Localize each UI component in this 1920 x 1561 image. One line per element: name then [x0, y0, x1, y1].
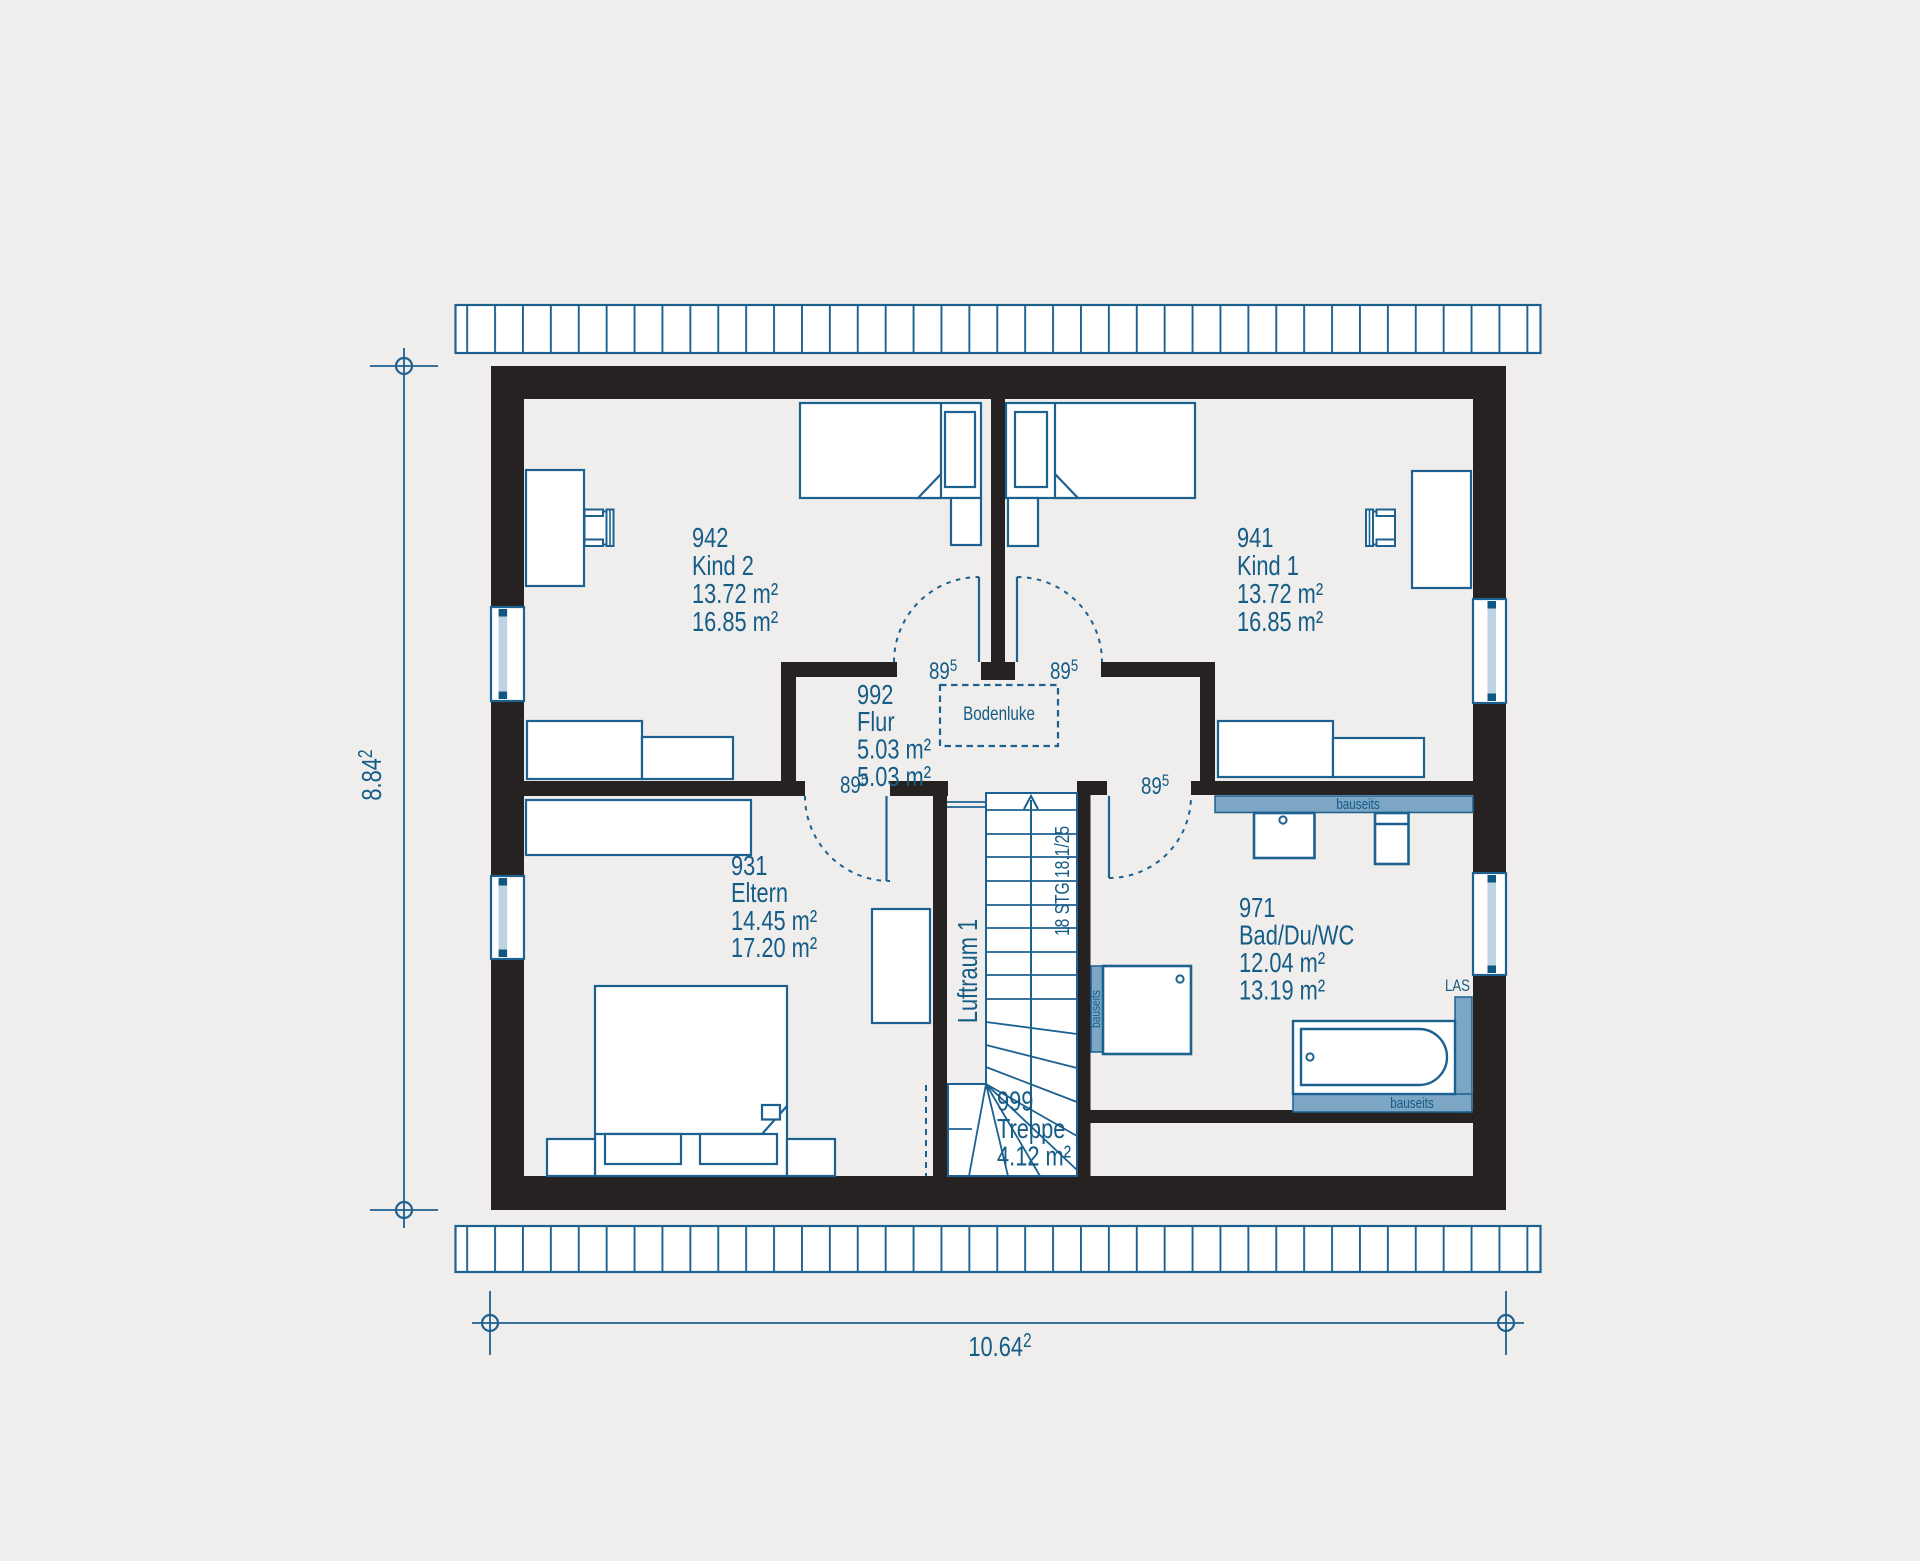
svg-text:Bodenluke: Bodenluke: [963, 702, 1035, 724]
svg-text:13.19 m²: 13.19 m²: [1239, 975, 1325, 1006]
svg-text:Luftraum 1: Luftraum 1: [952, 919, 983, 1023]
svg-text:18 STG 18.1/25: 18 STG 18.1/25: [1051, 826, 1073, 936]
svg-text:Eltern: Eltern: [731, 877, 788, 908]
svg-text:bauseits: bauseits: [1390, 1095, 1434, 1112]
svg-text:16.85 m²: 16.85 m²: [1237, 606, 1323, 637]
svg-text:LAS: LAS: [1445, 977, 1470, 996]
svg-text:Kind 1: Kind 1: [1237, 550, 1299, 581]
svg-text:17.20 m²: 17.20 m²: [731, 932, 817, 963]
svg-text:941: 941: [1237, 522, 1273, 553]
svg-text:16.85 m²: 16.85 m²: [692, 606, 778, 637]
svg-text:bauseits: bauseits: [1336, 796, 1380, 813]
svg-text:13.72 m²: 13.72 m²: [692, 578, 778, 609]
svg-text:942: 942: [692, 522, 728, 553]
svg-text:4.12 m²: 4.12 m²: [997, 1141, 1071, 1172]
svg-text:10.642: 10.642: [968, 1329, 1031, 1363]
svg-text:13.72 m²: 13.72 m²: [1237, 578, 1323, 609]
svg-text:Kind 2: Kind 2: [692, 550, 754, 581]
svg-text:bauseits: bauseits: [1089, 990, 1103, 1028]
